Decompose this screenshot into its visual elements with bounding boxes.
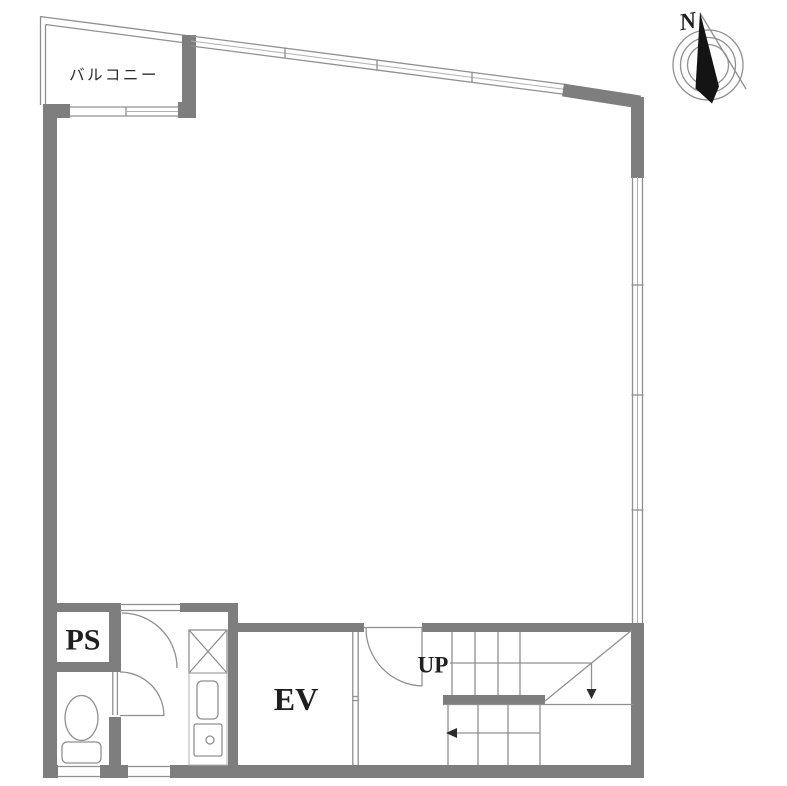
ps-label: PS	[65, 624, 100, 657]
balcony-label: バルコニー	[69, 66, 159, 84]
partition-walls	[43, 603, 644, 765]
compass-n-label: N	[676, 7, 700, 36]
top-slanted-window	[191, 36, 566, 95]
wall-right-upper	[631, 97, 644, 178]
wall-left	[43, 104, 57, 778]
wall-ps-bottom	[43, 662, 121, 672]
wall-segment	[182, 35, 196, 105]
outer-walls	[43, 36, 644, 778]
wall-ev-left	[228, 603, 238, 765]
kitchenette-column	[189, 630, 227, 765]
elevator-shaft	[353, 632, 358, 765]
staircase	[443, 630, 634, 765]
floor-plan-drawing: バルコニー PS EV UP N	[0, 0, 787, 786]
door-swing-arc	[122, 613, 177, 668]
right-window	[632, 177, 644, 623]
sink-basin	[197, 681, 218, 719]
toilet-tank	[62, 742, 101, 763]
door-swing-arc	[120, 672, 164, 716]
wall-toilet-right	[109, 717, 121, 765]
wall-stairs-top	[422, 623, 644, 632]
stove-unit	[194, 724, 222, 756]
wall-ps-right	[109, 603, 121, 672]
up-label: UP	[418, 653, 449, 678]
wall-ev-top	[238, 623, 364, 632]
toilet-door	[113, 672, 164, 716]
stair-arrow-down	[587, 689, 597, 699]
wall-bottom	[170, 765, 644, 778]
wall-top-slant	[563, 90, 640, 102]
wall-right-lower	[631, 623, 644, 778]
wall-bottom	[100, 765, 128, 778]
bottom-window-toilet	[58, 767, 100, 777]
door-swing-arc	[366, 628, 422, 686]
floor-plan-canvas: バルコニー PS EV UP N	[0, 0, 787, 786]
balcony-window	[70, 107, 178, 116]
toilet-fixture	[62, 696, 101, 764]
vestibule-door	[364, 628, 422, 687]
stair-landing-wall	[443, 695, 545, 704]
ev-label: EV	[274, 681, 318, 717]
bottom-window-corridor	[128, 767, 170, 777]
wall-bottom	[43, 765, 58, 778]
corridor-entry-door	[120, 605, 180, 669]
toilet-bowl	[65, 696, 98, 741]
wall-ps-top	[43, 603, 120, 612]
stove-burner	[206, 736, 214, 744]
